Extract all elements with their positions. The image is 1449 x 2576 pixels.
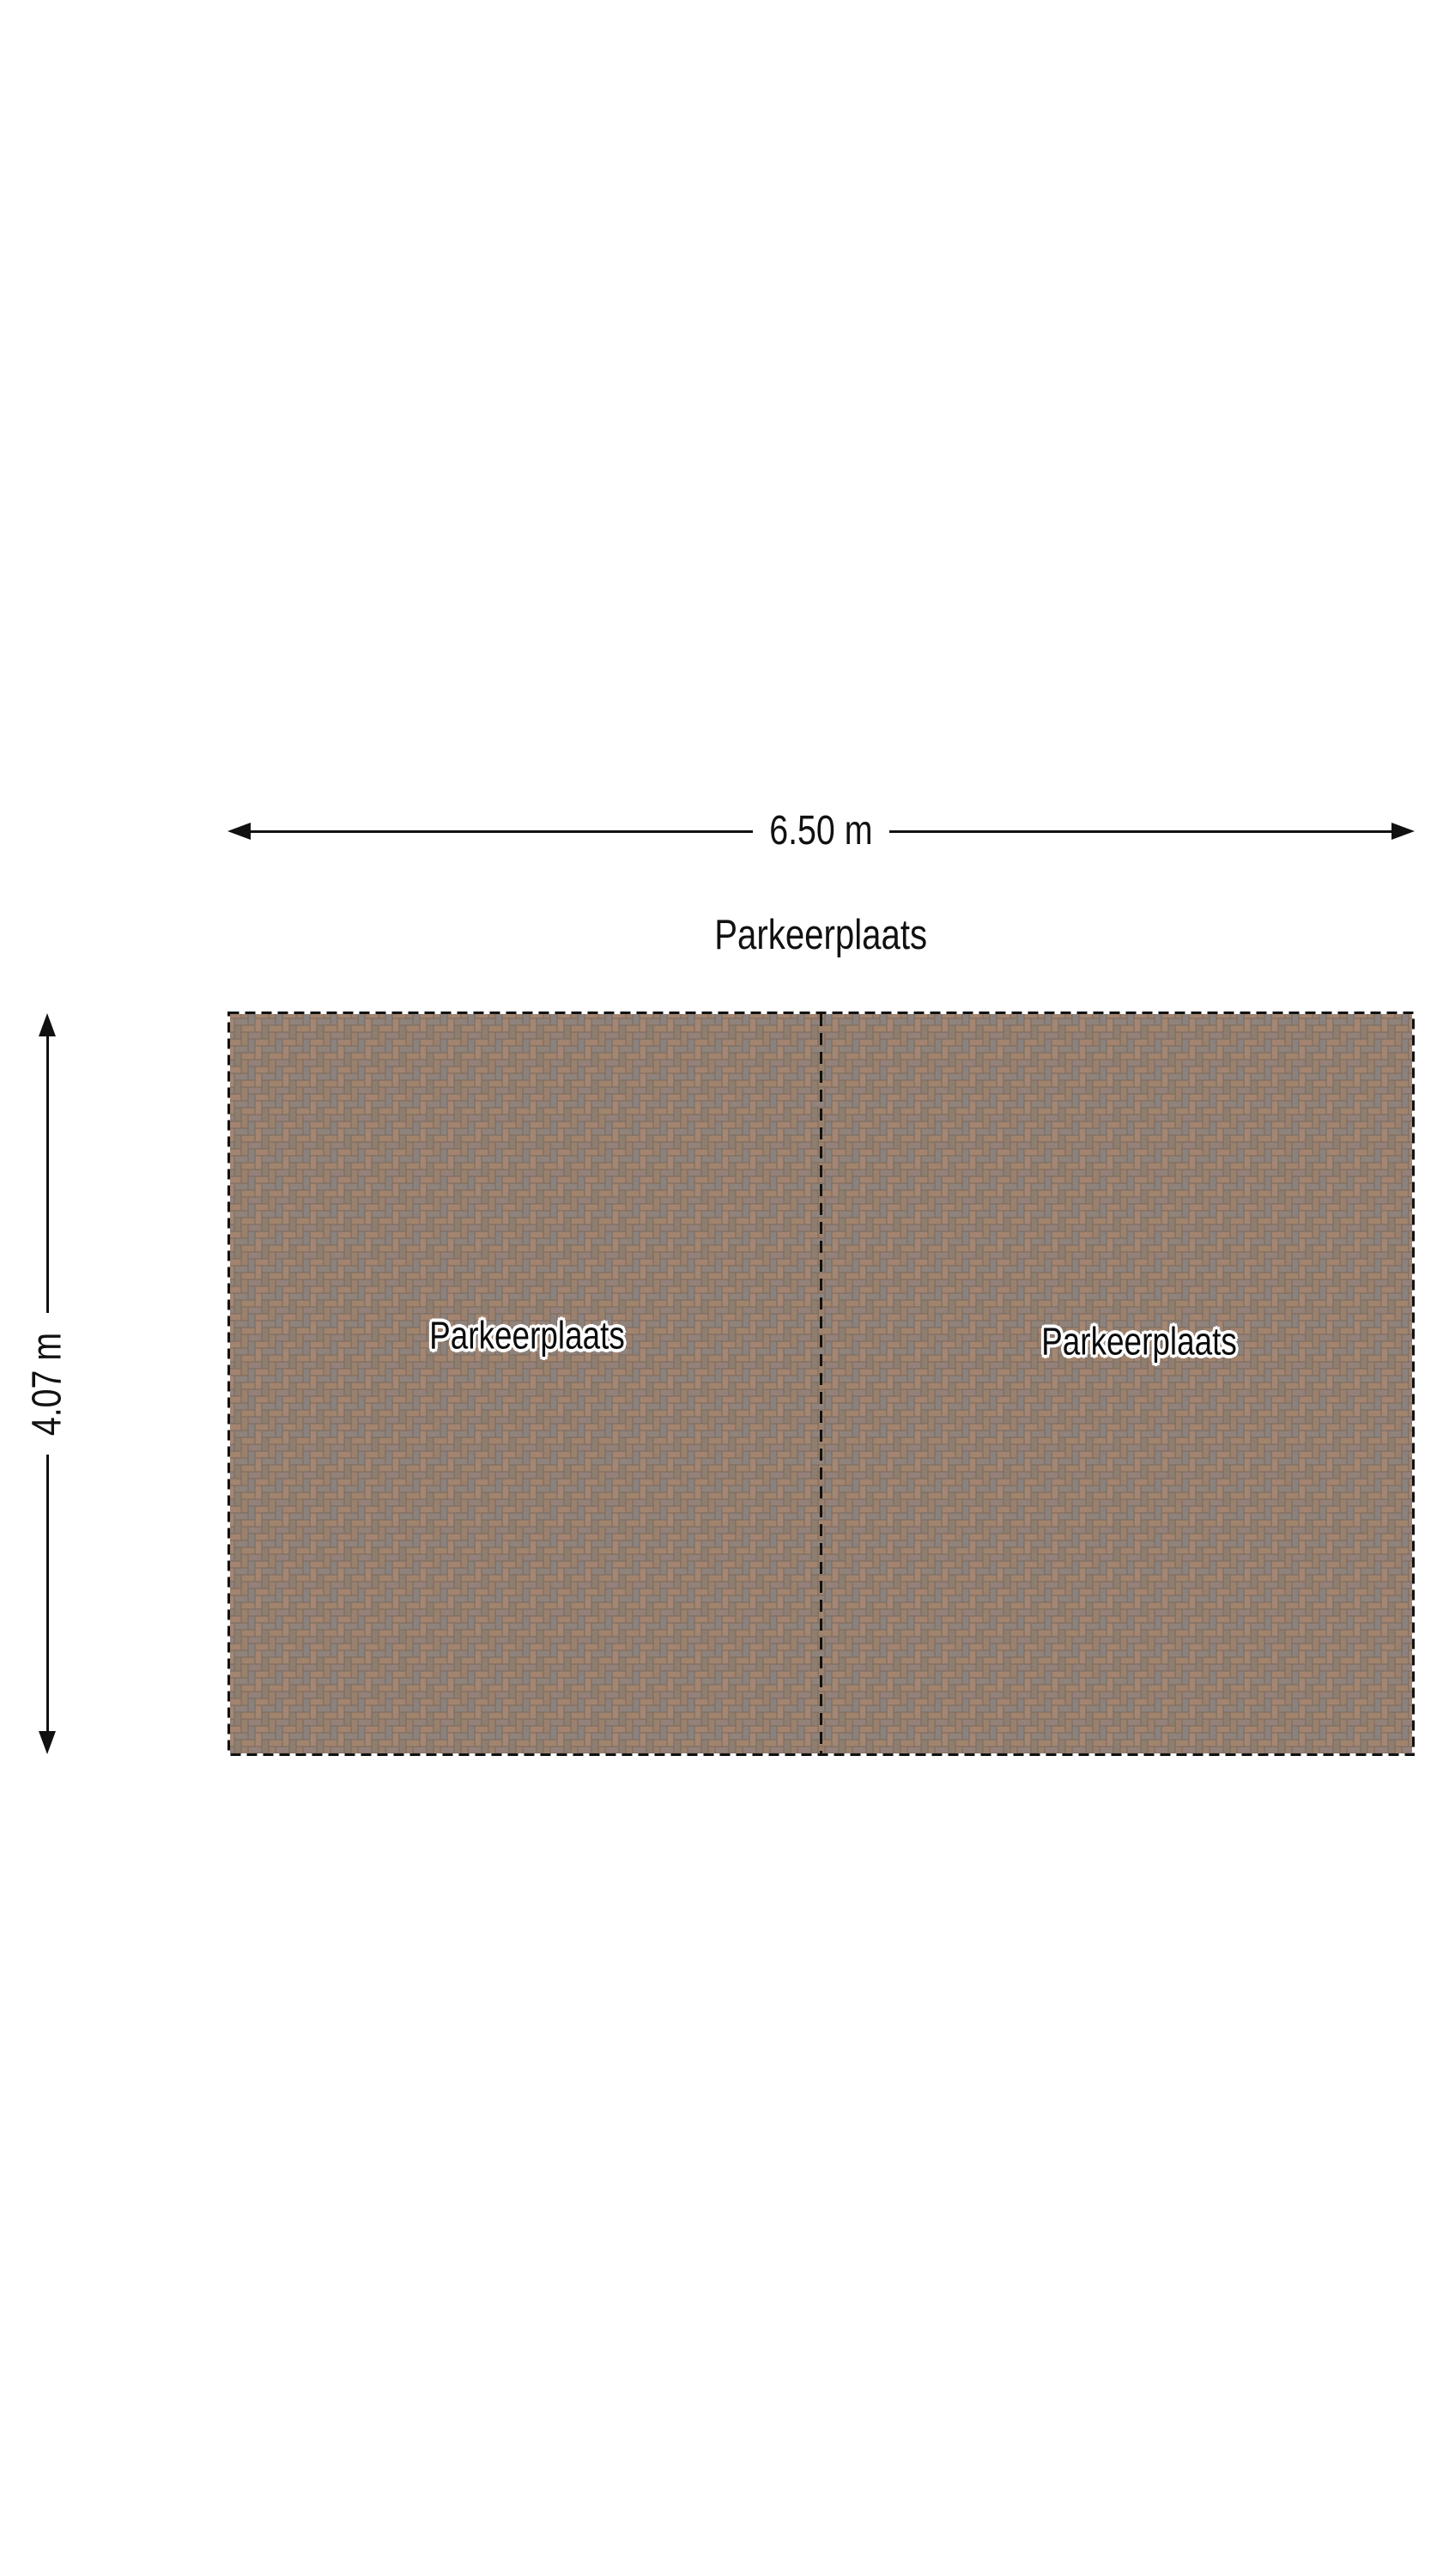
page-title: Parkeerplaats [227,914,1415,957]
width-dimension-label: 6.50 m [765,811,876,852]
floorplan-canvas: 6.50 m Parkeerplaats 4.07 m [0,0,1449,2576]
dimension-line-left [251,830,753,833]
arrow-right-icon [1391,823,1415,840]
arrow-down-icon [39,1731,56,1754]
dimension-line-top [46,1036,49,1313]
width-dimension: 6.50 m [227,812,1415,850]
height-dimension: 4.07 m [33,1013,62,1754]
dimension-line-bottom [46,1455,49,1731]
parking-space-right-label: Parkeerplaats [1041,1322,1237,1361]
height-dimension-label: 4.07 m [27,1332,68,1435]
page-title-text: Parkeerplaats [715,914,928,957]
parking-area-drawing [227,1012,1415,1756]
dimension-line-right [889,830,1391,833]
arrow-left-icon [227,823,251,840]
parking-area: Parkeerplaats Parkeerplaats [227,1012,1415,1756]
parking-space-left-label: Parkeerplaats [429,1316,625,1355]
arrow-up-icon [39,1013,56,1036]
height-dimension-label-box: 4.07 m [33,1313,62,1455]
